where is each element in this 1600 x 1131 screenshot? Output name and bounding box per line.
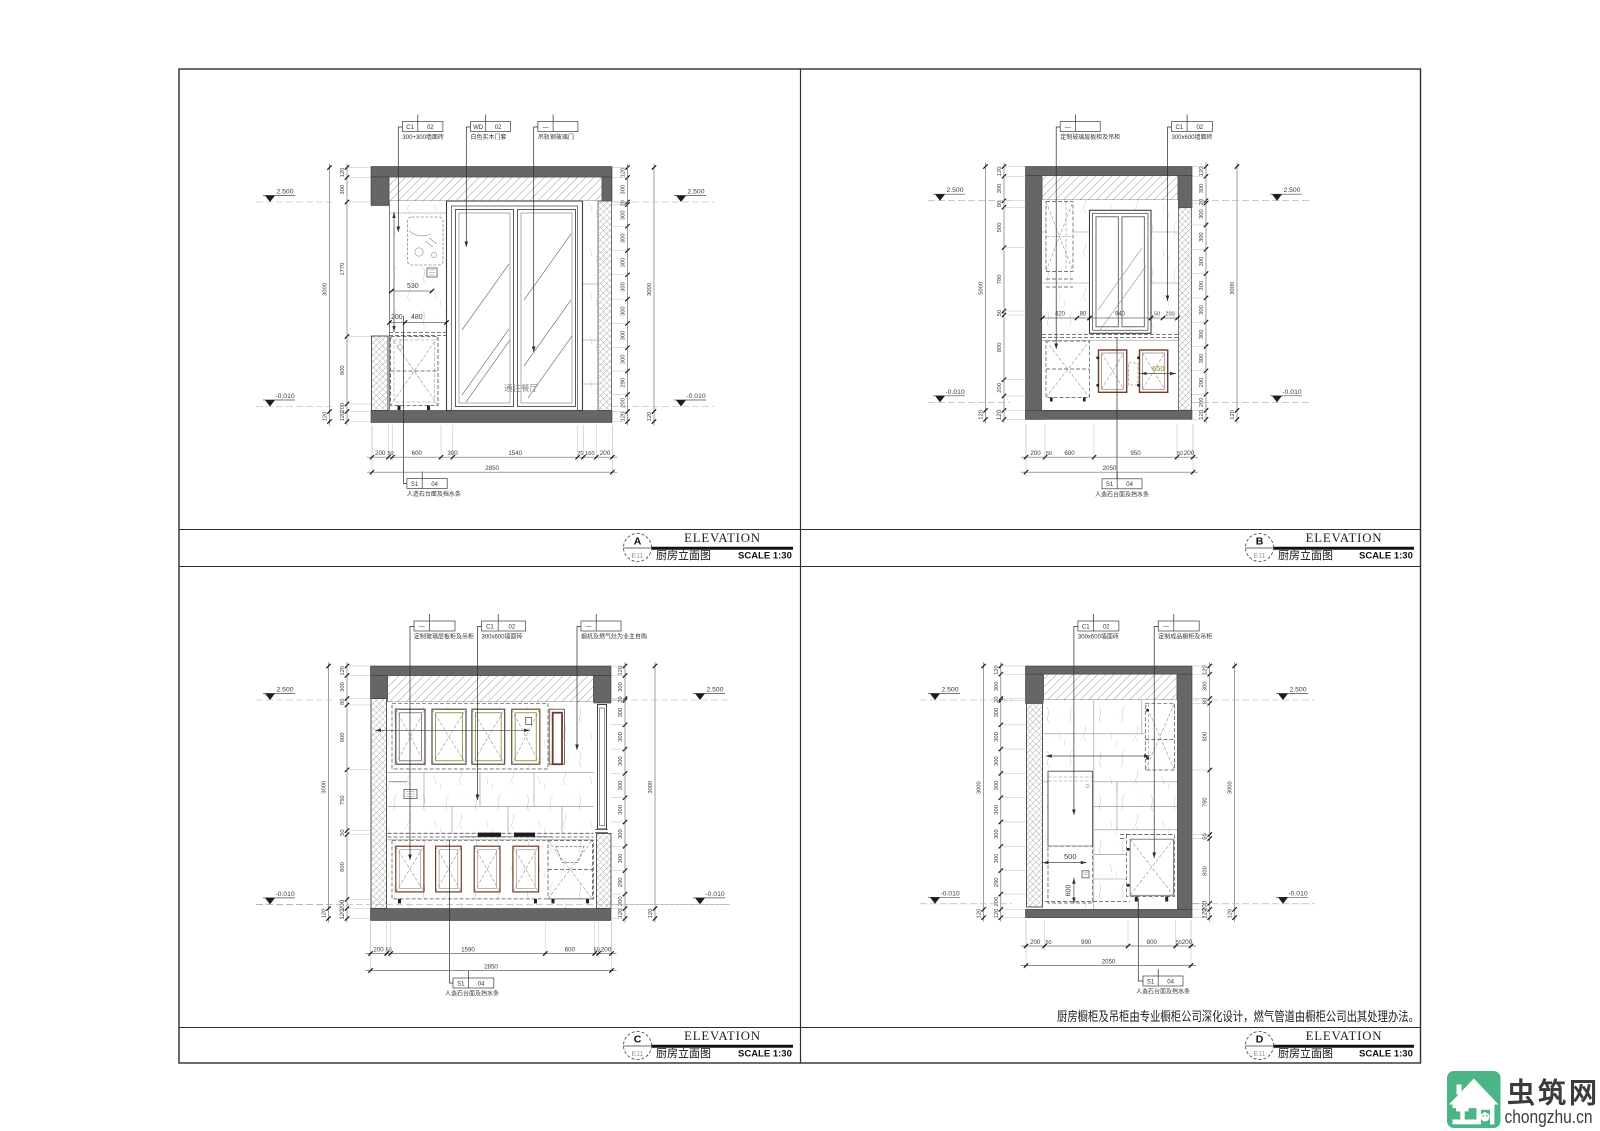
- svg-text:-0.010: -0.010: [1282, 389, 1301, 396]
- svg-text:800: 800: [1203, 866, 1209, 876]
- svg-text:290: 290: [618, 878, 624, 888]
- svg-text:300: 300: [994, 732, 1000, 742]
- svg-text:290: 290: [994, 878, 1000, 888]
- svg-text:300: 300: [621, 258, 627, 268]
- svg-text:120: 120: [994, 909, 1000, 919]
- svg-text:-0.010: -0.010: [686, 393, 705, 400]
- svg-text:300: 300: [1199, 305, 1205, 315]
- svg-text:200: 200: [601, 946, 612, 953]
- svg-text:200: 200: [373, 946, 384, 953]
- svg-text:50: 50: [997, 310, 1003, 316]
- svg-text:定制玻璃层板柜及吊柜: 定制玻璃层板柜及吊柜: [414, 633, 474, 641]
- svg-text:300: 300: [1199, 232, 1205, 242]
- svg-text:C1: C1: [406, 125, 414, 131]
- svg-text:800: 800: [340, 862, 346, 872]
- svg-text:厨房立面图: 厨房立面图: [656, 548, 711, 562]
- svg-text:人造石台面及挡水条: 人造石台面及挡水条: [1095, 490, 1149, 498]
- svg-text:300x600墙面砖: 300x600墙面砖: [1078, 633, 1119, 641]
- svg-text:S1: S1: [411, 482, 419, 488]
- svg-text:300: 300: [447, 450, 458, 457]
- svg-text:SCALE 1:30: SCALE 1:30: [1359, 1049, 1413, 1060]
- svg-text:ELEVATION: ELEVATION: [1306, 1029, 1383, 1043]
- svg-text:SCALE 1:30: SCALE 1:30: [738, 1049, 792, 1060]
- svg-text:300: 300: [1199, 257, 1205, 267]
- svg-text:200: 200: [997, 383, 1003, 393]
- svg-text:200: 200: [1030, 939, 1041, 946]
- svg-text:S1: S1: [1106, 482, 1114, 488]
- svg-text:120: 120: [618, 666, 624, 676]
- svg-text:200: 200: [1165, 312, 1174, 318]
- svg-text:300: 300: [621, 355, 627, 365]
- svg-text:800: 800: [340, 733, 346, 743]
- svg-text:C1: C1: [1082, 624, 1090, 630]
- svg-text:50: 50: [1045, 940, 1051, 946]
- svg-text:120: 120: [997, 167, 1003, 177]
- svg-text:2.500: 2.500: [276, 687, 293, 694]
- svg-text:200: 200: [1030, 450, 1041, 457]
- svg-text:02: 02: [1103, 624, 1110, 630]
- svg-text:200: 200: [340, 403, 346, 413]
- svg-text:300: 300: [994, 682, 1000, 692]
- svg-text:120: 120: [621, 168, 627, 178]
- svg-text:50: 50: [1203, 833, 1209, 839]
- svg-text:300: 300: [1199, 330, 1205, 340]
- svg-text:50: 50: [1046, 451, 1052, 457]
- svg-text:600: 600: [1066, 885, 1073, 897]
- svg-text:200: 200: [600, 450, 611, 457]
- svg-text:500: 500: [1064, 852, 1077, 861]
- svg-text:⊙: ⊙: [1085, 784, 1090, 790]
- svg-text:WD: WD: [473, 125, 484, 131]
- svg-text:300: 300: [618, 682, 624, 692]
- svg-text:20: 20: [994, 696, 1000, 702]
- svg-text:120: 120: [979, 410, 985, 420]
- svg-text:120: 120: [1202, 908, 1209, 919]
- svg-text:780: 780: [1203, 797, 1209, 807]
- svg-text:290: 290: [1199, 378, 1205, 388]
- svg-text:300: 300: [618, 708, 624, 718]
- svg-text:300x600墙面砖: 300x600墙面砖: [482, 633, 523, 641]
- svg-text:S1: S1: [1147, 979, 1155, 985]
- svg-text:人造石台面及挡水条: 人造石台面及挡水条: [407, 490, 461, 498]
- svg-text:750: 750: [340, 795, 346, 805]
- svg-text:530: 530: [407, 283, 419, 290]
- svg-text:2.500: 2.500: [687, 189, 704, 196]
- svg-text:SCALE 1:30: SCALE 1:30: [738, 551, 792, 562]
- svg-text:定制玻璃层板柜及吊柜: 定制玻璃层板柜及吊柜: [1060, 133, 1120, 141]
- svg-text:2050: 2050: [1102, 958, 1116, 965]
- svg-text:A: A: [634, 536, 642, 548]
- svg-text:E11: E11: [1254, 1051, 1266, 1058]
- svg-text:120: 120: [340, 666, 346, 676]
- svg-text:厨房立面图: 厨房立面图: [656, 1046, 711, 1060]
- svg-text:300: 300: [994, 708, 1000, 718]
- svg-text:300: 300: [340, 682, 346, 692]
- svg-text:800: 800: [1147, 939, 1158, 946]
- svg-text:02: 02: [509, 624, 516, 630]
- svg-text:200: 200: [339, 899, 346, 910]
- svg-text:50: 50: [1154, 312, 1160, 318]
- svg-text:800: 800: [997, 343, 1003, 353]
- svg-text:ELEVATION: ELEVATION: [684, 1029, 761, 1043]
- svg-text:300: 300: [621, 210, 627, 220]
- svg-text:120: 120: [322, 909, 328, 919]
- svg-text:20: 20: [1199, 199, 1205, 205]
- svg-text:ELEVATION: ELEVATION: [684, 531, 761, 545]
- svg-text:290: 290: [621, 378, 627, 388]
- svg-text:80: 80: [1080, 312, 1087, 318]
- svg-text:20: 20: [621, 200, 627, 206]
- svg-text:300: 300: [340, 185, 346, 195]
- svg-text:定制成品橱柜及吊柜: 定制成品橱柜及吊柜: [1158, 633, 1212, 641]
- svg-text:80: 80: [997, 201, 1003, 207]
- svg-text:200: 200: [1182, 939, 1193, 946]
- svg-text:120: 120: [1199, 410, 1205, 420]
- svg-text:600: 600: [565, 946, 576, 953]
- svg-text:300: 300: [994, 854, 1000, 864]
- svg-text:120: 120: [323, 412, 329, 422]
- svg-text:ELEVATION: ELEVATION: [1306, 531, 1383, 545]
- svg-text:120: 120: [1228, 909, 1234, 919]
- svg-text:300: 300: [621, 233, 627, 243]
- svg-text:C1: C1: [486, 624, 494, 630]
- svg-text:2.500: 2.500: [941, 687, 958, 694]
- svg-text:80: 80: [340, 699, 346, 705]
- svg-text:120: 120: [339, 909, 346, 920]
- svg-text:厨房立面图: 厨房立面图: [1278, 548, 1333, 562]
- svg-text:—: —: [419, 624, 425, 630]
- svg-text:780: 780: [997, 275, 1003, 285]
- svg-text:120: 120: [648, 909, 654, 919]
- svg-text:800: 800: [1203, 732, 1209, 742]
- svg-text:300: 300: [997, 184, 1003, 194]
- svg-text:—: —: [543, 125, 549, 131]
- svg-text:S1: S1: [457, 981, 465, 987]
- svg-text:2.500: 2.500: [1283, 187, 1300, 194]
- svg-text:990: 990: [1081, 939, 1092, 946]
- svg-text:200: 200: [375, 450, 386, 457]
- svg-text:300: 300: [994, 756, 1000, 766]
- svg-text:300: 300: [618, 756, 624, 766]
- svg-text:120: 120: [1230, 410, 1236, 420]
- svg-text:300: 300: [994, 829, 1000, 839]
- svg-text:300: 300: [1199, 281, 1205, 291]
- svg-text:2850: 2850: [484, 963, 498, 970]
- svg-text:300: 300: [1199, 184, 1205, 194]
- svg-text:-0.010: -0.010: [275, 891, 294, 898]
- svg-text:300: 300: [621, 306, 627, 316]
- svg-text:50: 50: [340, 829, 346, 835]
- svg-text:300: 300: [621, 331, 627, 341]
- svg-text:300: 300: [621, 185, 627, 195]
- svg-text:300: 300: [618, 805, 624, 815]
- svg-text:人造石台面及挡水条: 人造石台面及挡水条: [445, 990, 499, 998]
- svg-text:1590: 1590: [461, 946, 475, 953]
- svg-text:300: 300: [618, 781, 624, 791]
- svg-text:2.500: 2.500: [1289, 687, 1306, 694]
- svg-text:70: 70: [577, 451, 583, 457]
- svg-text:3000: 3000: [977, 781, 983, 794]
- svg-text:C: C: [634, 1034, 642, 1046]
- svg-text:500: 500: [997, 223, 1003, 233]
- svg-text:1540: 1540: [508, 450, 522, 457]
- svg-text:04: 04: [1126, 482, 1133, 488]
- svg-text:-0.010: -0.010: [1288, 890, 1307, 897]
- svg-text:120: 120: [994, 665, 1000, 675]
- svg-text:虫筑网: 虫筑网: [1507, 1078, 1597, 1109]
- svg-text:E11: E11: [1254, 553, 1266, 560]
- svg-text:02: 02: [1196, 125, 1203, 131]
- svg-text:120: 120: [647, 412, 653, 422]
- svg-text:120: 120: [977, 909, 983, 919]
- svg-text:C1: C1: [1175, 125, 1183, 131]
- svg-text:950: 950: [1130, 450, 1141, 457]
- svg-text:SCALE 1:30: SCALE 1:30: [1359, 551, 1413, 562]
- svg-text:04: 04: [1167, 979, 1174, 985]
- svg-text:chongzhu.cn: chongzhu.cn: [1505, 1107, 1593, 1127]
- svg-text:50: 50: [386, 947, 392, 953]
- svg-text:厨房立面图: 厨房立面图: [1278, 1046, 1333, 1060]
- svg-text:160: 160: [585, 451, 595, 457]
- svg-text:80: 80: [1203, 698, 1209, 704]
- svg-text:2050: 2050: [1103, 465, 1117, 472]
- svg-text:300: 300: [994, 781, 1000, 791]
- svg-text:50: 50: [387, 451, 393, 457]
- svg-text:-0.010: -0.010: [940, 890, 959, 897]
- svg-text:200: 200: [1184, 450, 1195, 457]
- svg-text:—: —: [1163, 624, 1169, 630]
- svg-text:D: D: [1256, 1034, 1264, 1046]
- svg-text:120: 120: [621, 412, 627, 422]
- svg-text:2850: 2850: [485, 465, 499, 472]
- svg-text:600: 600: [1064, 450, 1075, 457]
- svg-text:600: 600: [412, 450, 423, 457]
- svg-text:通往餐厅: 通往餐厅: [504, 383, 539, 393]
- svg-text:3000: 3000: [647, 283, 653, 296]
- svg-text:940: 940: [1115, 312, 1126, 318]
- svg-text:120: 120: [1199, 167, 1205, 177]
- svg-text:烟机及燃气灶为业主自购: 烟机及燃气灶为业主自购: [581, 633, 647, 641]
- svg-text:120: 120: [1203, 665, 1209, 675]
- svg-text:480: 480: [411, 314, 423, 321]
- svg-text:800: 800: [340, 365, 346, 375]
- svg-text:吊轨钢玻璃门: 吊轨钢玻璃门: [538, 133, 574, 141]
- svg-text:3000: 3000: [1230, 282, 1236, 295]
- svg-text:5000: 5000: [979, 282, 985, 295]
- svg-text:120: 120: [340, 168, 346, 178]
- svg-text:04: 04: [478, 981, 485, 987]
- svg-text:04: 04: [431, 482, 438, 488]
- svg-text:-0.010: -0.010: [275, 393, 294, 400]
- svg-text:300: 300: [618, 829, 624, 839]
- svg-text:650: 650: [1152, 364, 1165, 373]
- svg-text:300: 300: [1199, 354, 1205, 364]
- svg-text:20: 20: [618, 696, 624, 702]
- svg-text:-0.010: -0.010: [705, 891, 724, 898]
- svg-text:厨房橱柜及吊柜由专业橱柜公司深化设计，燃气管道由橱柜公司出其: 厨房橱柜及吊柜由专业橱柜公司深化设计，燃气管道由橱柜公司出其处理办法。: [1057, 1009, 1419, 1024]
- svg-text:3000: 3000: [323, 283, 329, 296]
- svg-text:420: 420: [1055, 312, 1066, 318]
- svg-text:2.500: 2.500: [706, 687, 723, 694]
- svg-text:人造石台面及挡水条: 人造石台面及挡水条: [1136, 988, 1190, 996]
- svg-text:白色实木门套: 白色实木门套: [471, 133, 507, 141]
- svg-text:300+300墙面砖: 300+300墙面砖: [402, 133, 444, 141]
- svg-text:E11: E11: [632, 553, 644, 560]
- svg-text:B: B: [1256, 536, 1264, 548]
- svg-text:120: 120: [996, 409, 1003, 420]
- svg-text:2.500: 2.500: [946, 187, 963, 194]
- svg-text:50: 50: [1177, 451, 1183, 457]
- svg-text:3000: 3000: [1228, 781, 1234, 794]
- svg-text:50: 50: [594, 947, 600, 953]
- svg-text:2.500: 2.500: [276, 189, 293, 196]
- svg-text:300: 300: [618, 732, 624, 742]
- svg-text:-0.010: -0.010: [945, 389, 964, 396]
- svg-text:200: 200: [994, 897, 1000, 907]
- svg-text:1770: 1770: [340, 263, 346, 276]
- svg-text:300: 300: [1199, 209, 1205, 219]
- svg-text:200: 200: [391, 314, 403, 321]
- svg-text:E11: E11: [632, 1051, 644, 1058]
- svg-text:300: 300: [621, 282, 627, 292]
- svg-text:02: 02: [427, 125, 434, 131]
- svg-text:02: 02: [495, 125, 502, 131]
- svg-text:300x600墙面砖: 300x600墙面砖: [1172, 133, 1213, 141]
- svg-text:300: 300: [994, 805, 1000, 815]
- svg-text:120: 120: [340, 412, 346, 422]
- svg-text:120: 120: [618, 909, 624, 919]
- svg-text:—: —: [586, 624, 592, 630]
- svg-text:300: 300: [618, 854, 624, 864]
- svg-text:—: —: [1065, 125, 1071, 131]
- svg-text:3000: 3000: [648, 781, 654, 794]
- svg-text:3000: 3000: [322, 781, 328, 794]
- svg-text:300: 300: [1203, 682, 1209, 692]
